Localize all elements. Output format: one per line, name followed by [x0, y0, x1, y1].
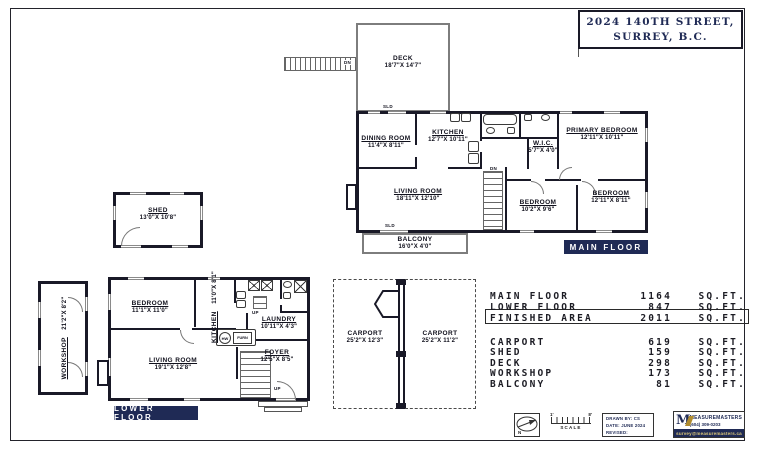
- toilet: [541, 114, 550, 121]
- door-opening: [85, 297, 88, 311]
- drawn-by-line: DRAWN BY: CS: [606, 416, 650, 423]
- window: [645, 192, 648, 208]
- door-opening: [85, 362, 88, 376]
- wall: [598, 179, 647, 181]
- wall: [480, 152, 482, 169]
- stairs-dn-label: DN: [489, 166, 498, 171]
- wall: [505, 167, 507, 233]
- sliding-door-label: SLD: [384, 223, 396, 228]
- deck-stairs-dn-label: DN: [343, 60, 352, 65]
- kitchen-sink: [461, 113, 471, 122]
- room-label-deck: DECK 18'7"X 14'7": [385, 55, 422, 69]
- window: [38, 350, 41, 366]
- wall: [519, 111, 521, 139]
- sink: [524, 114, 532, 121]
- drawn-by-box: DRAWN BY: CS DATE: JUNE 2024 REVISED:: [602, 413, 654, 437]
- window: [170, 192, 184, 195]
- wall: [236, 347, 238, 379]
- table-row: FINISHED AREA 2011 SQ.FT.: [490, 313, 746, 324]
- window: [128, 277, 144, 280]
- window: [113, 206, 116, 220]
- room-label-primary-bedroom: PRIMARY BEDROOM 12'11"X 10'11": [566, 127, 637, 141]
- scale-label: SCALE: [560, 425, 581, 430]
- scale-ruler: [551, 417, 591, 424]
- area-table: MAIN FLOOR 1164 SQ.FT. LOWER FLOOR 847 S…: [490, 289, 746, 391]
- window: [596, 230, 612, 233]
- compass-box: N: [514, 413, 540, 437]
- room-label-balcony: BALCONY 16'0"X 4'0": [398, 236, 433, 250]
- stairs: [253, 296, 267, 309]
- wall: [415, 111, 417, 145]
- kitchen-counter: [236, 300, 246, 308]
- stove: [468, 141, 479, 152]
- bathtub: [483, 114, 517, 125]
- room-label-laundry: LAUNDRY 10'11"X 4'3": [261, 316, 297, 330]
- wall: [234, 277, 236, 303]
- fireplace: [346, 184, 357, 210]
- wall: [108, 328, 180, 330]
- window: [130, 398, 148, 401]
- room-label-dining: DINING ROOM 11'4"X 8'11": [361, 135, 410, 149]
- scale-box: 1' 8' SCALE: [548, 412, 594, 438]
- sliding-door-label: SLD: [382, 104, 394, 109]
- toilet: [283, 281, 292, 288]
- date-line: DATE: JUNE 2024: [606, 423, 650, 430]
- toilet: [486, 127, 495, 134]
- window: [368, 111, 380, 114]
- title-box: 2024 140TH STREET, SURREY, B.C.: [578, 10, 743, 49]
- sliding-door: [388, 111, 406, 114]
- sink: [283, 292, 291, 299]
- stairs: [483, 171, 503, 230]
- room-label-shed: SHED 13'0"X 10'8": [140, 207, 177, 221]
- floor-plan-sheet: 2024 140TH STREET, SURREY, B.C. DECK 18'…: [0, 0, 770, 450]
- wall: [448, 167, 482, 169]
- address-line2: SURREY, B.C.: [613, 30, 707, 44]
- wall: [280, 311, 310, 313]
- window: [130, 192, 146, 195]
- window: [200, 206, 203, 220]
- table-row: MAIN FLOOR 1164 SQ.FT.: [490, 291, 746, 302]
- window: [430, 111, 446, 114]
- room-label-living-lower: LIVING ROOM 19'1"X 12'8": [149, 357, 197, 371]
- company-name: MEASUREMASTERS: [690, 415, 742, 421]
- stairs-up-label: UP: [251, 310, 260, 315]
- window: [38, 302, 41, 318]
- kitchen-counter: [450, 113, 460, 122]
- table-row: WORKSHOP 173 SQ.FT.: [490, 368, 746, 379]
- measuremasters-logo-icon: M: [676, 413, 689, 429]
- kitchen-sink: [248, 280, 260, 291]
- window: [604, 111, 620, 114]
- carport-right-outline: [405, 279, 476, 409]
- wall: [194, 277, 196, 327]
- wall: [505, 179, 531, 181]
- fridge: [468, 153, 479, 164]
- wall: [356, 111, 359, 233]
- main-floor-label: MAIN FLOOR: [564, 240, 648, 254]
- table-row: SHED 159 SQ.FT.: [490, 347, 746, 358]
- window: [108, 294, 111, 310]
- window: [184, 398, 200, 401]
- table-row: LOWER FLOOR 847 SQ.FT.: [490, 302, 746, 313]
- address-line1: 2024 140TH STREET,: [586, 15, 734, 29]
- window: [520, 230, 534, 233]
- north-label: N: [518, 430, 521, 435]
- room-label-carport-left: CARPORT 25'2"X 12'3": [347, 330, 384, 344]
- window: [645, 128, 648, 142]
- porch-step: [264, 407, 302, 412]
- company-text: MEASUREMASTERS (604) 309-0203: [690, 415, 742, 427]
- room-label-workshop: WORKSHOP 21'2"X 8'2": [53, 297, 71, 380]
- stairs-up-label: UP: [273, 386, 282, 391]
- room-label-wic: W.I.C. 5'7"X 4'0": [528, 140, 558, 154]
- room-label-kitchen-main: KITCHEN 12'7"X 10'11": [428, 129, 468, 143]
- kitchen-sink: [261, 280, 273, 291]
- window: [172, 245, 188, 248]
- revised-line: REVISED:: [606, 430, 650, 437]
- sink: [507, 127, 515, 134]
- kitchen-counter: [236, 291, 246, 299]
- chimney: [374, 290, 400, 318]
- room-label-bedroom-lower: BEDROOM 11'1"X 11'0": [132, 300, 169, 314]
- fireplace: [97, 360, 109, 386]
- wall: [482, 137, 559, 139]
- lower-floor-label: LOWER FLOOR: [114, 406, 198, 420]
- wall: [356, 167, 416, 169]
- room-label-bedroom-mid: BEDROOM 10'2"X 9'6": [520, 199, 557, 213]
- room-label-kitchen-lower: KITCHEN 11'0"X 8'1": [203, 271, 221, 343]
- window: [560, 111, 572, 114]
- shower: [294, 280, 307, 293]
- room-label-living-main: LIVING ROOM 18'11"X 12'10": [394, 188, 442, 202]
- room-label-carport-right: CARPORT 25'2"X 11'2": [422, 330, 458, 344]
- room-label-foyer: FOYER 12'5"X 8'5": [260, 349, 293, 363]
- company-phone: (604) 309-0203: [690, 422, 742, 427]
- furnace: FURN: [233, 332, 252, 344]
- company-email: survey@measuremasters.ca: [674, 429, 744, 437]
- logo-row: M MEASUREMASTERS (604) 309-0203: [674, 412, 744, 430]
- wall: [280, 277, 282, 299]
- wall: [576, 185, 578, 232]
- table-row: BALCONY 81 SQ.FT.: [490, 379, 746, 390]
- room-label-bedroom-right: BEDROOM 12'11"X 8'11": [591, 190, 631, 204]
- company-logo-box: M MEASUREMASTERS (604) 309-0203 survey@m…: [673, 411, 745, 438]
